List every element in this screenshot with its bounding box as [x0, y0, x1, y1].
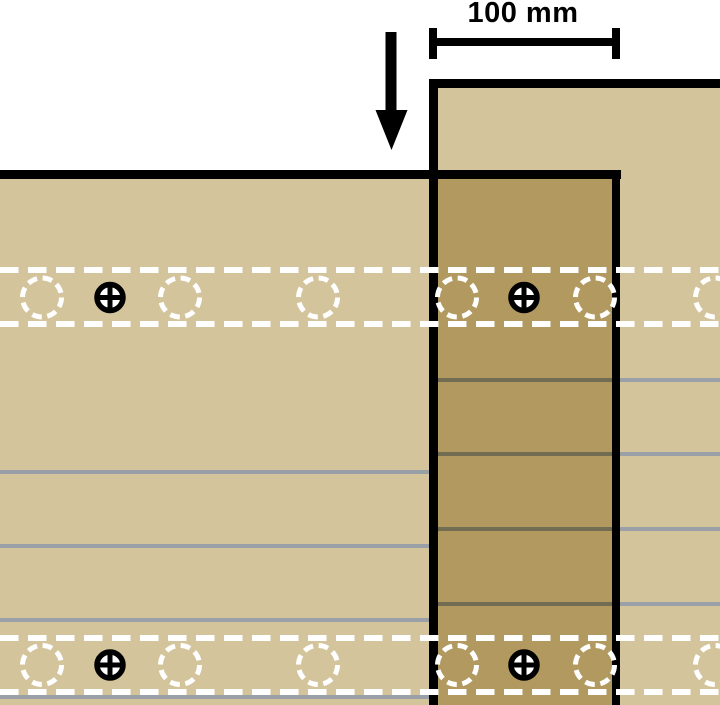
lamination-line [612, 527, 720, 531]
lamination-line [0, 544, 429, 548]
joint-diagram [0, 0, 720, 705]
vertical-member-top-edge [429, 79, 720, 88]
lamination-line [612, 452, 720, 456]
lamination-line [438, 378, 612, 382]
joint-diagram-canvas: 100 mm [0, 0, 720, 705]
lamination-line [438, 602, 612, 606]
lamination-line [0, 695, 429, 699]
lamination-line [612, 602, 720, 606]
lamination-line [612, 378, 720, 382]
load-arrow-shaft [386, 32, 397, 112]
dimension-bar [429, 38, 620, 46]
dimension-tick-right [612, 28, 620, 59]
lamination-line [0, 470, 429, 474]
dimension-label: 100 mm [467, 0, 578, 28]
horizontal-member-top-edge [0, 170, 621, 179]
dimension-tick-left [429, 28, 437, 59]
vertical-member-left-edge [429, 79, 438, 705]
load-arrow-head [376, 110, 408, 150]
lamination-line [438, 452, 612, 456]
horizontal-member-right-edge [612, 170, 620, 705]
lamination-line [0, 618, 429, 622]
lamination-line [438, 527, 612, 531]
overlap-region-fill [438, 175, 612, 705]
